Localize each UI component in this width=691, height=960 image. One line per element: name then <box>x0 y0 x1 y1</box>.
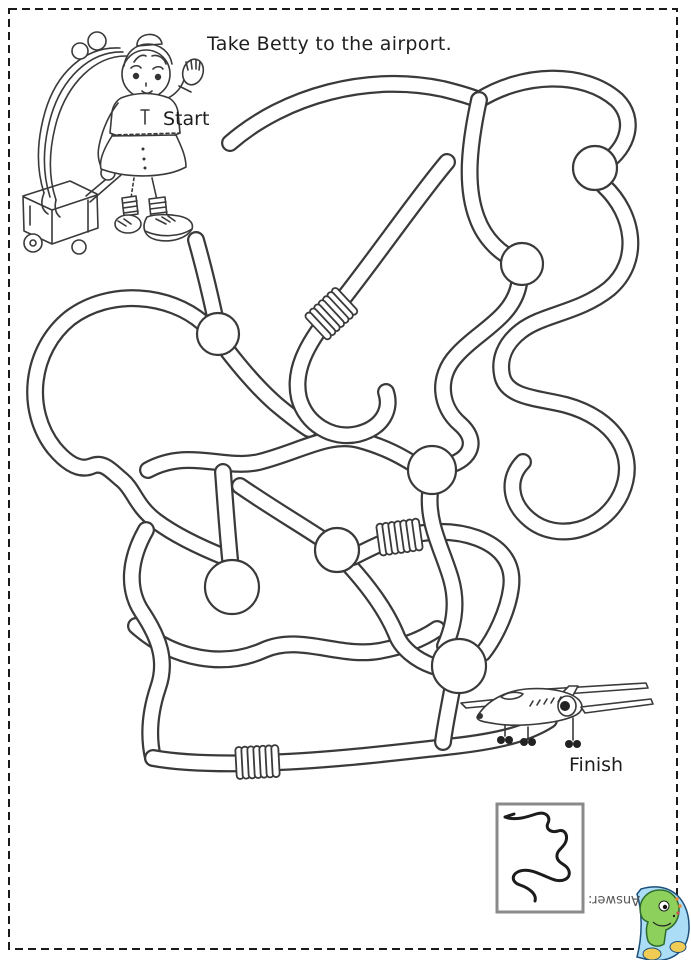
knot-node <box>197 313 239 355</box>
dino-mascot-logo <box>637 887 689 960</box>
suitcase-wheel <box>24 234 42 252</box>
finish-label: Finish <box>569 754 623 776</box>
logo-foot <box>643 948 661 960</box>
girl-head <box>122 50 170 98</box>
sneaker <box>144 215 192 241</box>
girl-eye <box>133 73 139 79</box>
answer-label: Answer: <box>588 892 640 907</box>
logo-foot <box>670 942 686 953</box>
knot-node <box>501 243 543 285</box>
knot-node <box>315 528 359 572</box>
maze-paths <box>35 79 630 764</box>
knot-node <box>205 560 259 614</box>
suitcase-wheel <box>72 240 86 254</box>
girl-skirt <box>100 135 186 176</box>
worksheet-page: Take Betty to the airport. Start Finish … <box>0 0 691 960</box>
hair-bead <box>72 43 88 59</box>
girl-illustration <box>23 32 207 254</box>
sneaker <box>115 215 141 233</box>
airplane-right-wing <box>581 699 653 713</box>
hair-bead <box>88 32 106 50</box>
page-title: Take Betty to the airport. <box>207 33 452 55</box>
airplane-nose <box>477 713 483 719</box>
dino-nostril <box>673 915 675 917</box>
start-label: Start <box>163 108 209 130</box>
coil-segment <box>376 518 423 556</box>
girl-eye <box>155 74 161 80</box>
maze-artwork <box>0 0 691 960</box>
knot-node <box>573 146 617 190</box>
answer-box-frame <box>497 804 583 912</box>
answer-box <box>497 804 583 912</box>
coil-segment <box>235 745 280 779</box>
knot-node <box>432 639 486 693</box>
knot-node <box>408 446 456 494</box>
